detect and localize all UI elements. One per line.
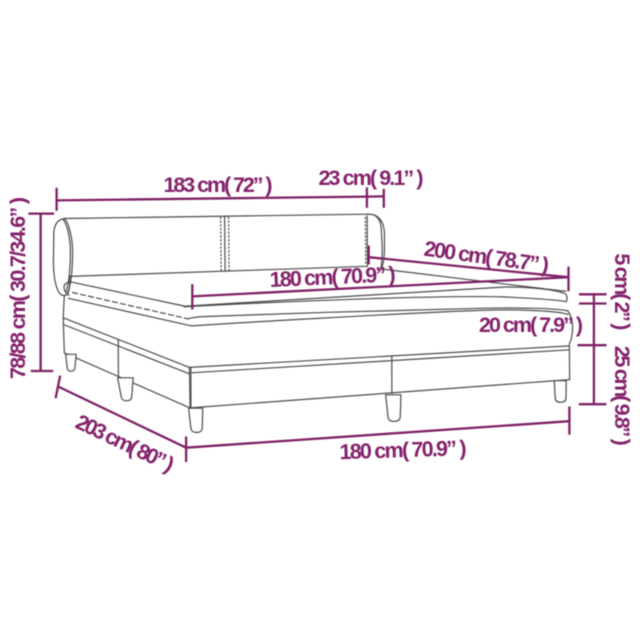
svg-text:200 cm( 78.7” ): 200 cm( 78.7” ) xyxy=(423,237,551,278)
svg-text:180 cm( 70.9” ): 180 cm( 70.9” ) xyxy=(339,436,467,464)
svg-text:25 cm( 9.8” ): 25 cm( 9.8” ) xyxy=(610,346,634,446)
svg-text:23 cm( 9.1” ): 23 cm( 9.1” ) xyxy=(319,166,424,190)
svg-text:203 cm( 80” ): 203 cm( 80” ) xyxy=(72,410,178,477)
svg-text:78/88 cm( 30.7/34.6” ): 78/88 cm( 30.7/34.6” ) xyxy=(6,197,30,379)
svg-text:20 cm( 7.9” ): 20 cm( 7.9” ) xyxy=(479,313,583,337)
svg-text:5 cm( 2” ): 5 cm( 2” ) xyxy=(610,253,634,330)
svg-text:183 cm( 72” ): 183 cm( 72” ) xyxy=(164,173,273,197)
